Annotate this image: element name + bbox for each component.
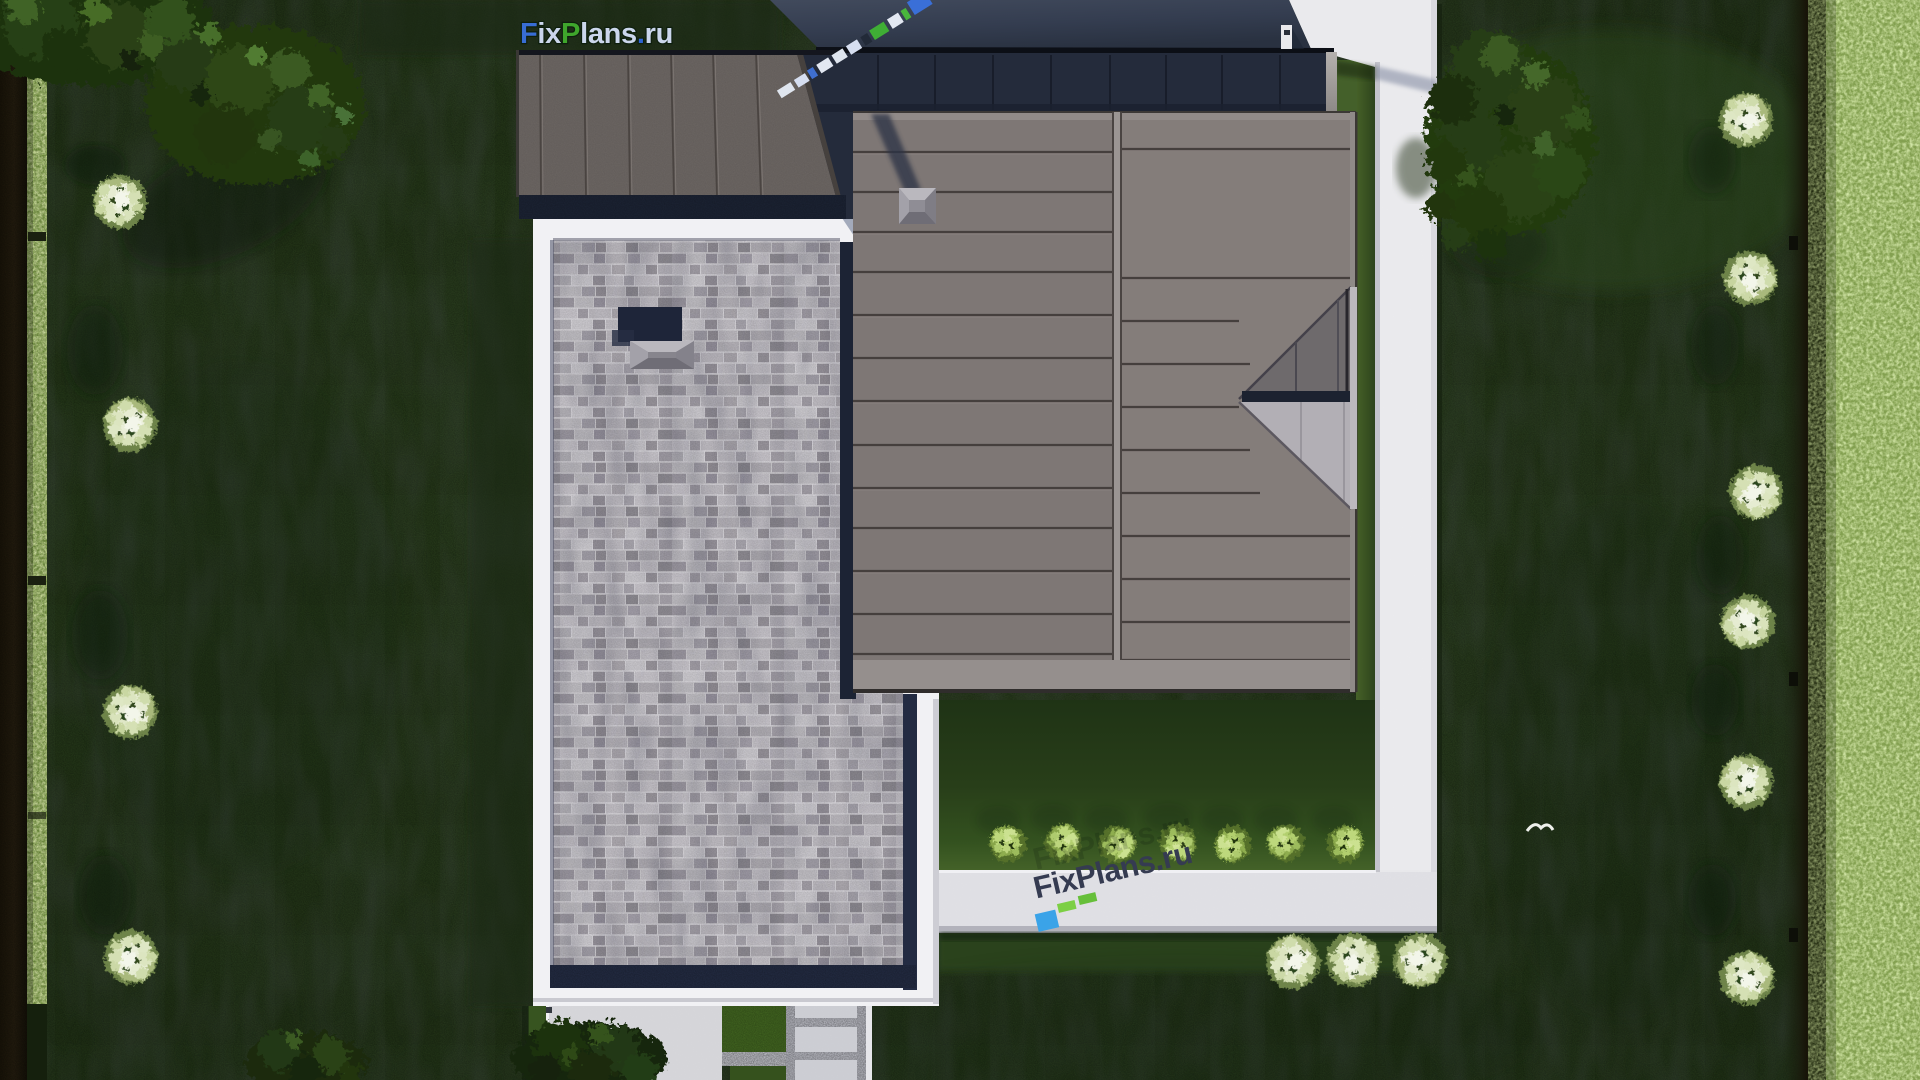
svg-text:FixPlans.ru: FixPlans.ru bbox=[520, 18, 673, 50]
